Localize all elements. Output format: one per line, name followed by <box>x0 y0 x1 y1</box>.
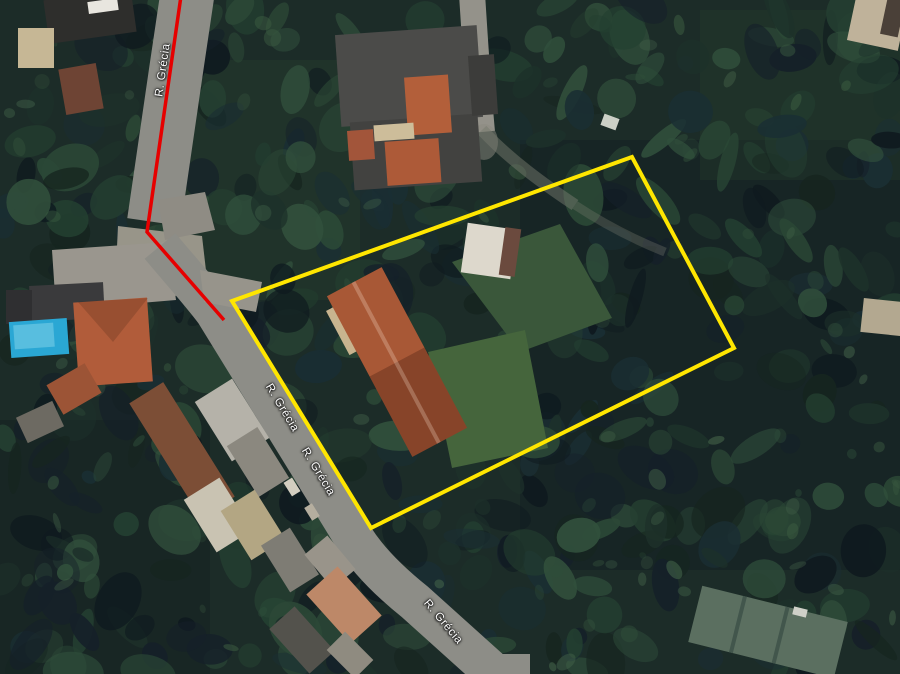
building-roof <box>18 28 54 68</box>
road-upper <box>154 0 188 222</box>
satellite-map: R. Grécia R. Grécia R. Grécia R. Grécia <box>0 0 900 674</box>
satellite-canvas <box>0 0 900 674</box>
pool-water-highlight <box>13 323 55 350</box>
courtyard <box>373 123 414 142</box>
canopy-blob <box>625 74 645 81</box>
building-roof <box>860 298 900 336</box>
building-roof <box>58 63 103 115</box>
building-roof <box>6 290 32 324</box>
canopy-blob <box>415 206 470 227</box>
tile-roof <box>347 129 375 161</box>
tile-roof <box>385 138 442 186</box>
building-roof <box>468 54 498 116</box>
